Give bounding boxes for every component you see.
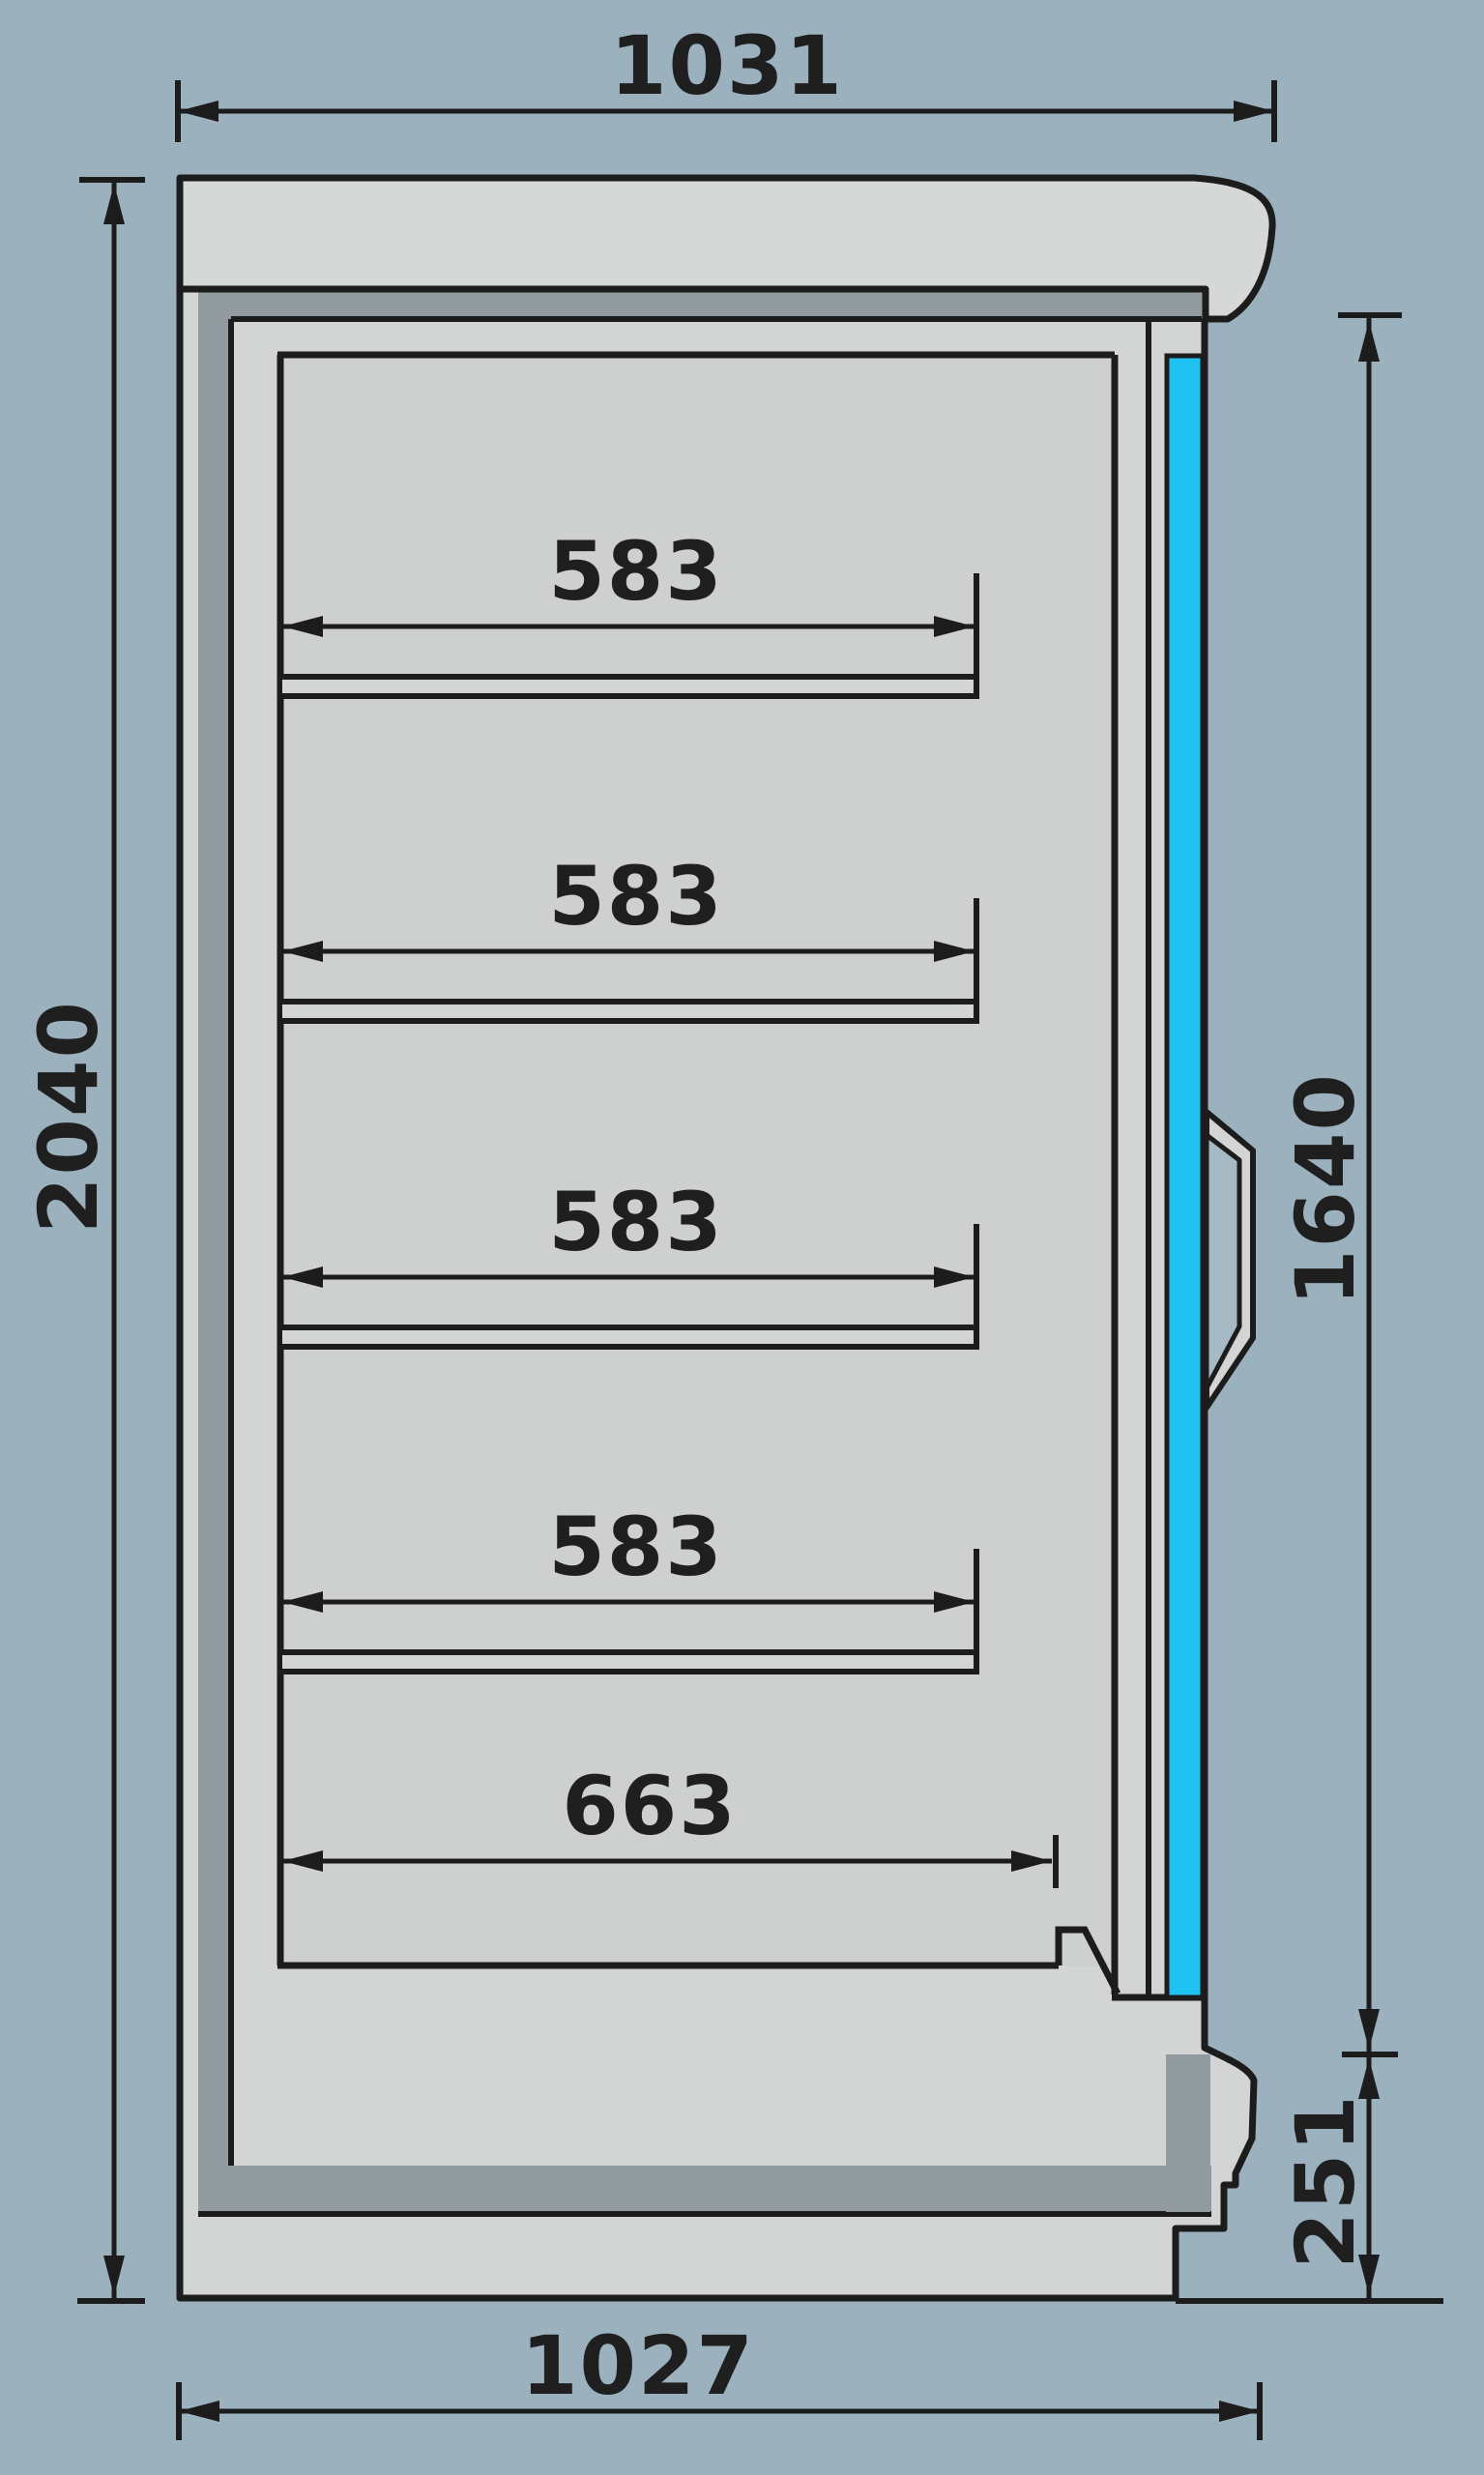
frame-top-band bbox=[198, 289, 1204, 319]
frame-right-rail bbox=[1166, 2054, 1210, 2212]
frame-bottom-band bbox=[198, 2166, 1211, 2212]
base-height-label: 251 bbox=[1278, 2093, 1373, 2268]
top-width-label: 1031 bbox=[610, 18, 844, 113]
dimension-drawing: 583 583 583 583 663 1031 bbox=[0, 0, 1484, 2475]
shelf-4-depth-label: 583 bbox=[548, 1500, 723, 1594]
base-shelf-depth-label: 663 bbox=[562, 1759, 737, 1853]
overall-height-label: 2040 bbox=[21, 1000, 116, 1234]
frame-left-rail bbox=[198, 289, 229, 2176]
shelf-2-depth-label: 583 bbox=[548, 849, 723, 944]
drawing-canvas: 583 583 583 583 663 1031 bbox=[0, 0, 1484, 2475]
door-height-label: 1640 bbox=[1278, 1072, 1373, 1306]
bottom-width-label: 1027 bbox=[521, 2318, 755, 2413]
glass-door-strip bbox=[1167, 356, 1203, 1997]
shelf-3-depth-label: 583 bbox=[548, 1175, 723, 1269]
shelf-1-depth-label: 583 bbox=[548, 524, 723, 619]
